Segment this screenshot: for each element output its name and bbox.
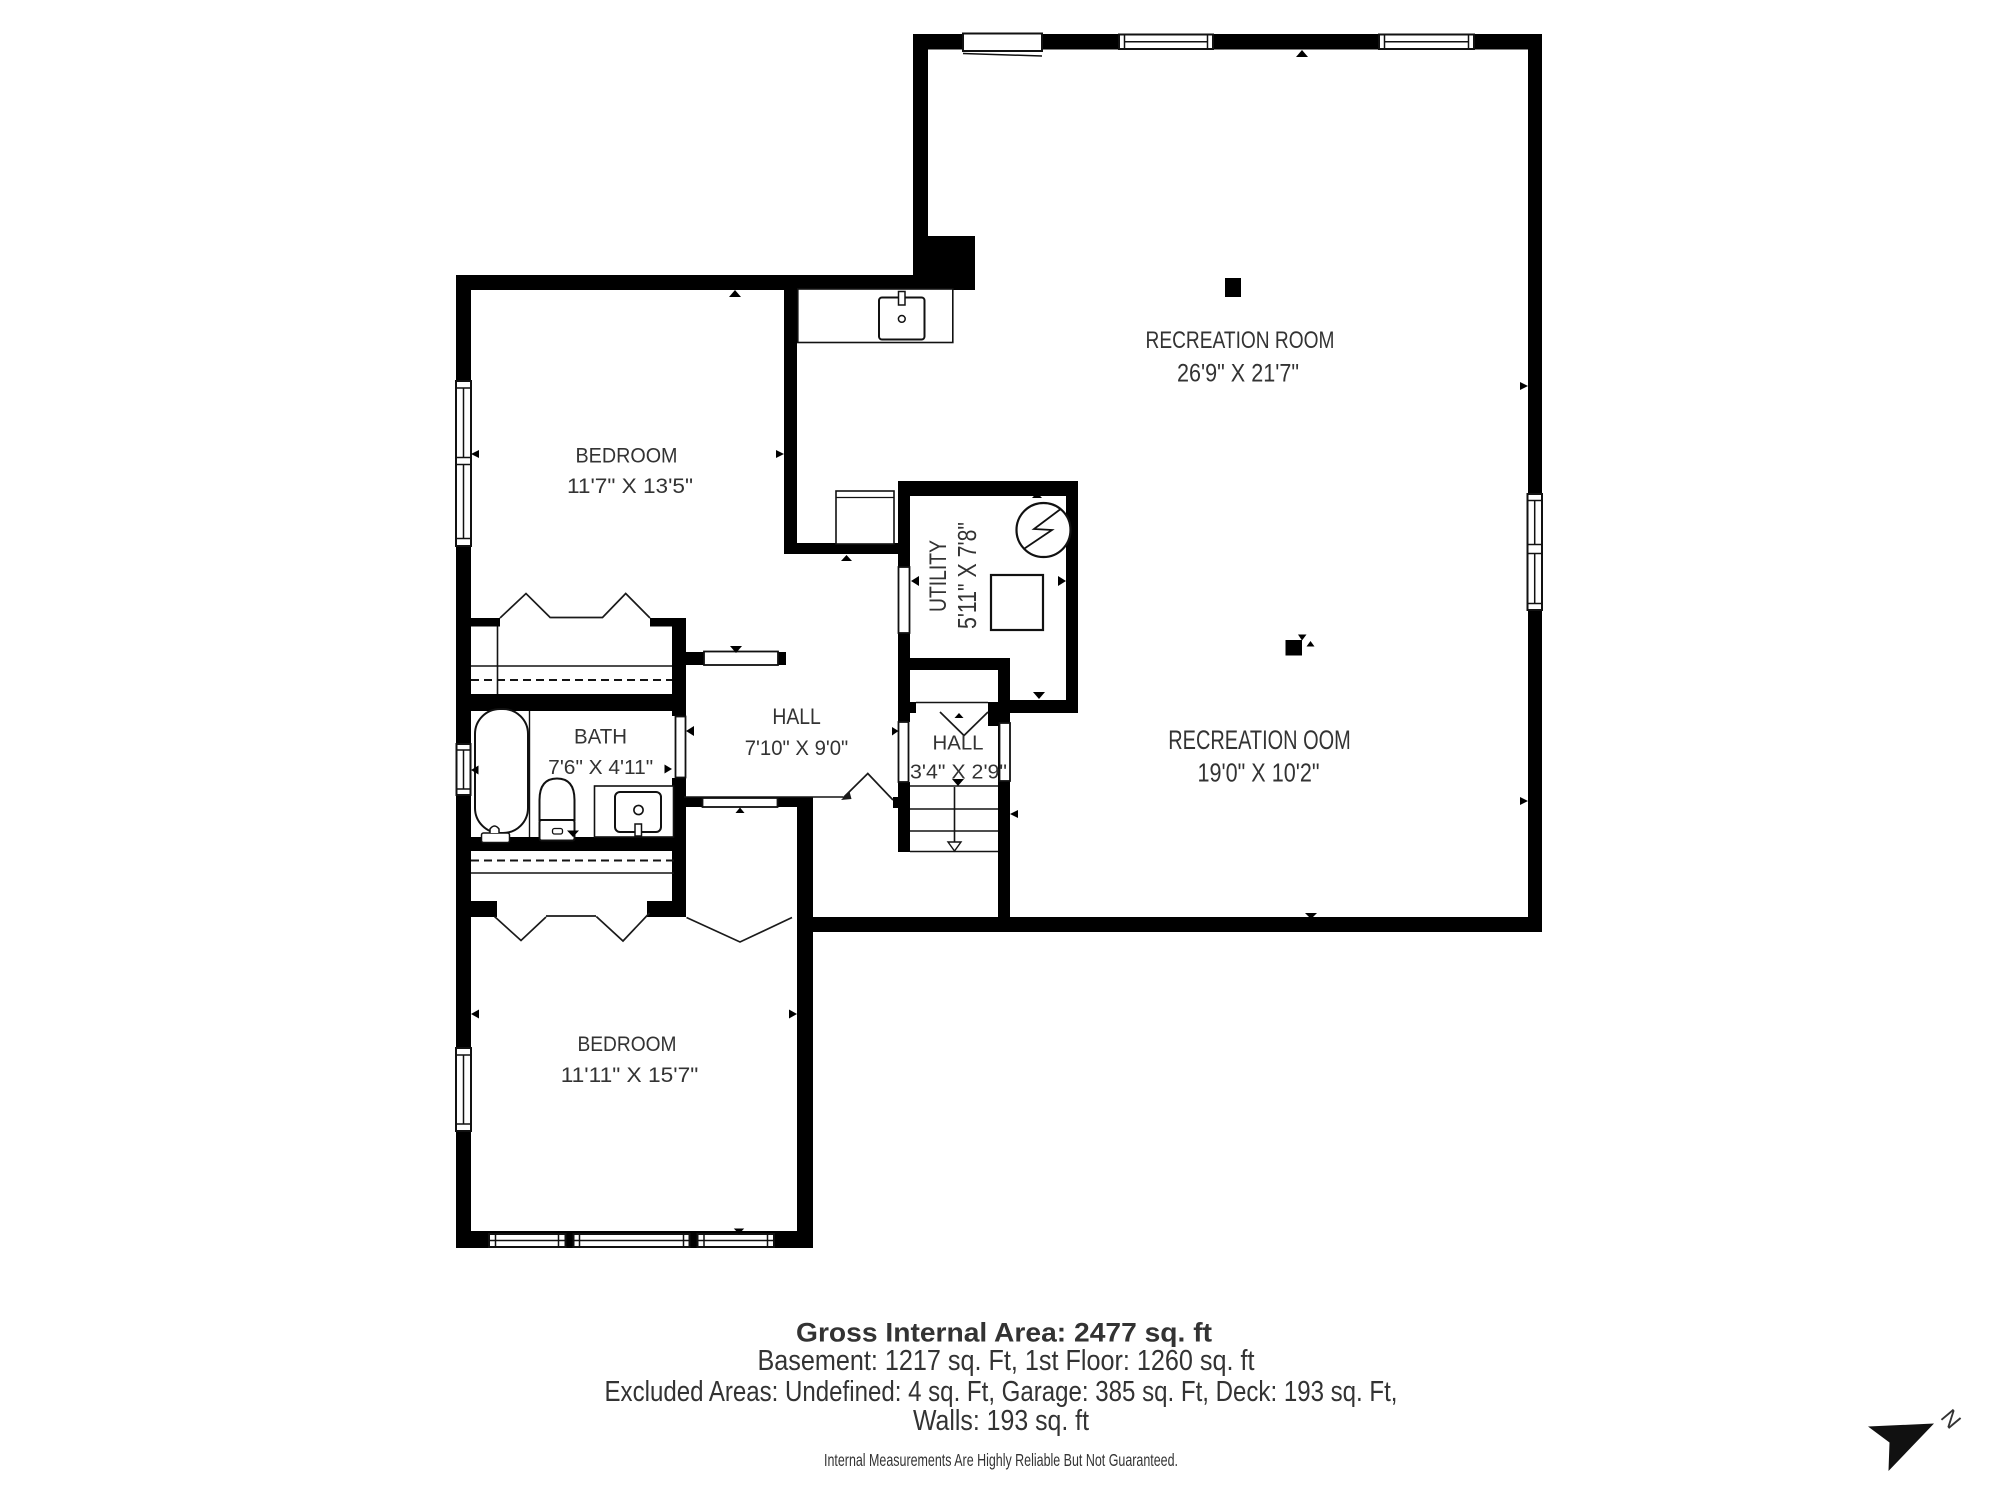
svg-text:7'10" X 9'0": 7'10" X 9'0" bbox=[745, 737, 849, 760]
svg-text:7'6" X 4'11": 7'6" X 4'11" bbox=[548, 756, 653, 779]
svg-text:Basement: 1217 sq. Ft, 1st Flo: Basement: 1217 sq. Ft, 1st Floor: 1260 s… bbox=[758, 1345, 1255, 1377]
svg-text:RECREATION ROOM: RECREATION ROOM bbox=[1146, 328, 1335, 354]
svg-text:UTILITY: UTILITY bbox=[925, 540, 952, 612]
svg-text:Gross Internal Area: 2477 sq.: Gross Internal Area: 2477 sq. ft bbox=[796, 1318, 1212, 1348]
svg-text:Excluded Areas: Undefined: 4 s: Excluded Areas: Undefined: 4 sq. Ft, Gar… bbox=[605, 1376, 1398, 1408]
svg-text:19'0" X 10'2": 19'0" X 10'2" bbox=[1198, 758, 1320, 788]
svg-text:Walls: 193 sq. ft: Walls: 193 sq. ft bbox=[913, 1405, 1089, 1437]
svg-text:11'11" X 15'7": 11'11" X 15'7" bbox=[561, 1063, 699, 1087]
svg-text:Internal Measurements Are High: Internal Measurements Are Highly Reliabl… bbox=[824, 1450, 1178, 1470]
svg-text:BATH: BATH bbox=[574, 725, 627, 749]
svg-text:BEDROOM: BEDROOM bbox=[578, 1033, 677, 1056]
svg-text:5'11" X 7'8": 5'11" X 7'8" bbox=[952, 522, 982, 629]
svg-text:3'4" X 2'9": 3'4" X 2'9" bbox=[910, 761, 1007, 784]
svg-text:HALL: HALL bbox=[933, 732, 984, 755]
svg-text:HALL: HALL bbox=[772, 704, 821, 729]
svg-text:26'9" X 21'7": 26'9" X 21'7" bbox=[1177, 360, 1299, 388]
svg-text:11'7" X 13'5": 11'7" X 13'5" bbox=[567, 474, 693, 498]
svg-text:RECREATION OOM: RECREATION OOM bbox=[1168, 725, 1351, 755]
svg-text:BEDROOM: BEDROOM bbox=[576, 443, 678, 468]
